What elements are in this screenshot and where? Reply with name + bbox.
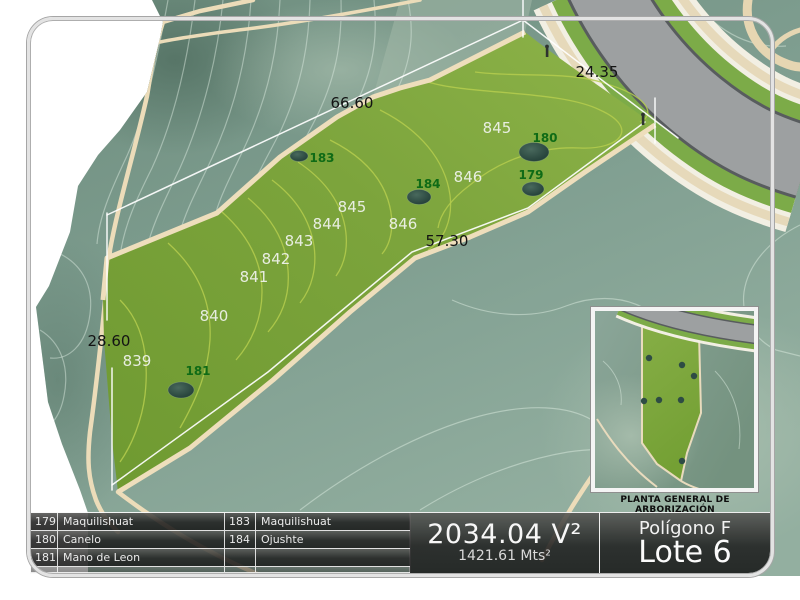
legend-species: Maquilishuat [256, 513, 411, 531]
legend-id: 183 [225, 513, 256, 531]
elevation-label: 845 [483, 119, 512, 137]
bottom-info-bar: 179 Maquilishuat 183 Maquilishuat 180 Ca… [30, 512, 771, 574]
elevation-label: 843 [285, 232, 314, 250]
tree-label-184: 184 [415, 177, 440, 191]
lot-title-panel: Polígono F Lote 6 [600, 512, 771, 574]
lote-label: Lote 6 [638, 539, 731, 568]
elevation-label: 846 [389, 215, 418, 233]
dimension-label-top: 66.60 [331, 94, 374, 112]
area-value-meters: 1421.61 Mts² [458, 549, 551, 564]
tree-legend-table: 179 Maquilishuat 183 Maquilishuat 180 Ca… [30, 512, 410, 574]
legend-id: 179 [31, 513, 58, 531]
site-plan-page: 66.60 24.35 57.30 28.60 845 846 845 846 … [0, 0, 800, 600]
legend-species: Canelo [58, 531, 225, 549]
legend-species: Maquilishuat [58, 513, 225, 531]
legend-id: 181 [31, 549, 58, 567]
dimension-label-mid: 57.30 [426, 232, 469, 250]
overview-inset-map [591, 307, 758, 492]
tree-label-180: 180 [532, 131, 557, 145]
legend-species [256, 549, 411, 567]
tree-label-179: 179 [518, 168, 543, 182]
dimension-label-road: 24.35 [576, 63, 619, 81]
area-panel: 2034.04 V² 1421.61 Mts² [410, 512, 600, 574]
tree-dot-184 [407, 190, 431, 205]
tree-label-183: 183 [309, 151, 334, 165]
area-value-varas: 2034.04 V² [427, 521, 582, 549]
legend-empty-cell [225, 567, 256, 573]
legend-id [225, 549, 256, 567]
elevation-label: 840 [200, 307, 229, 325]
elevation-label: 842 [262, 250, 291, 268]
elevation-label: 841 [240, 268, 269, 286]
elevation-label: 845 [338, 198, 367, 216]
legend-species: Ojushte [256, 531, 411, 549]
elevation-label: 844 [313, 215, 342, 233]
tree-label-181: 181 [185, 364, 210, 378]
legend-empty-cell [31, 567, 58, 573]
tree-dot-181 [168, 382, 194, 398]
tree-dot-179 [522, 182, 544, 196]
legend-empty-cell [256, 567, 411, 573]
elevation-label: 839 [123, 352, 152, 370]
legend-id: 184 [225, 531, 256, 549]
legend-empty-cell [58, 567, 225, 573]
legend-species: Mano de Leon [58, 549, 225, 567]
tree-dot-183 [290, 151, 308, 162]
tree-dot-180 [519, 143, 549, 162]
elevation-label: 846 [454, 168, 483, 186]
dimension-label-left: 28.60 [88, 332, 131, 350]
legend-id: 180 [31, 531, 58, 549]
